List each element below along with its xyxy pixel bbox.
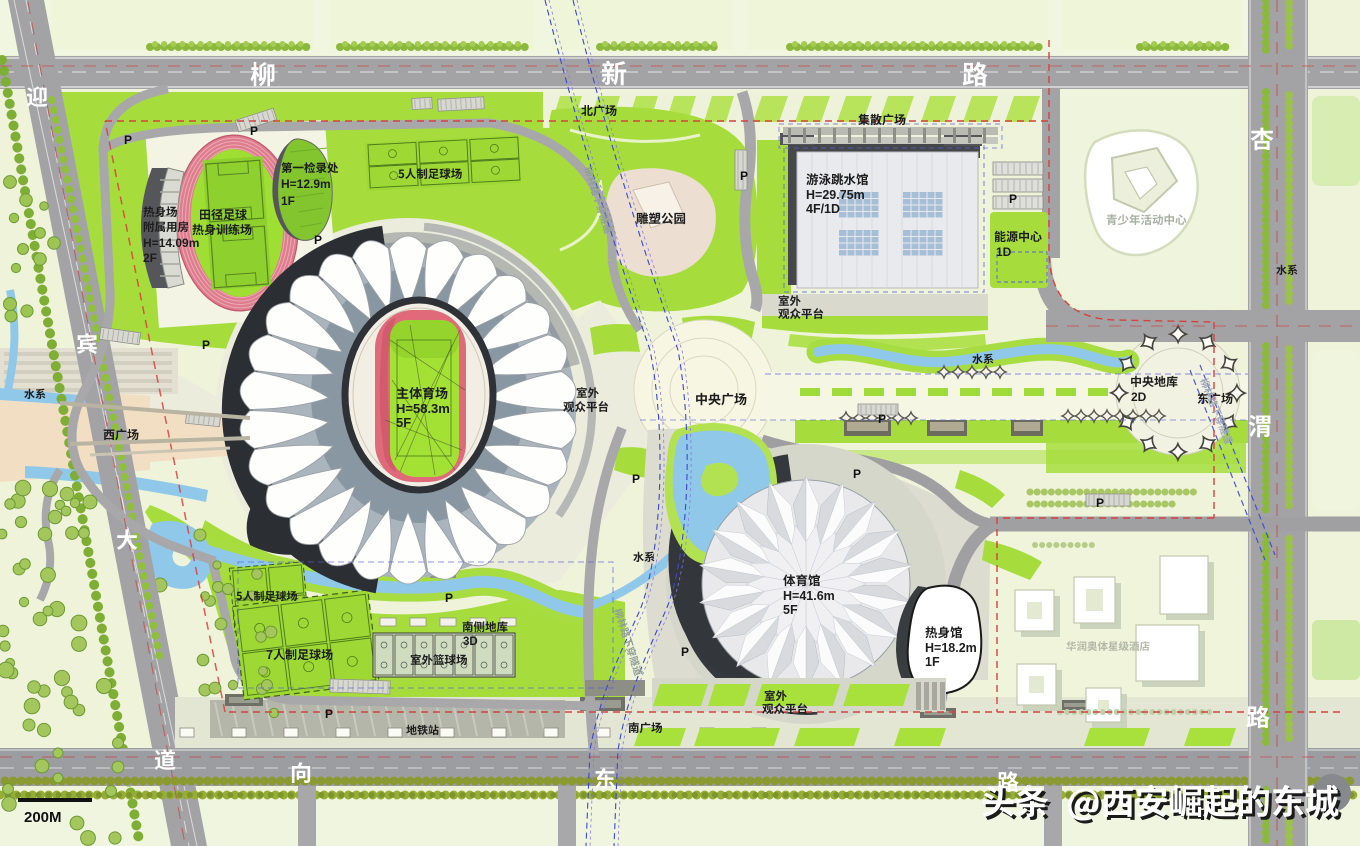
svg-text:H=58.3m: H=58.3m <box>396 401 450 416</box>
svg-text:4F/1D: 4F/1D <box>806 202 840 216</box>
svg-text:3D: 3D <box>463 636 478 648</box>
svg-text:P: P <box>445 591 453 605</box>
svg-text:2D: 2D <box>1131 390 1147 404</box>
svg-text:P: P <box>250 124 258 138</box>
svg-text:2F: 2F <box>143 251 157 265</box>
svg-text:H=29.75m: H=29.75m <box>806 188 865 202</box>
svg-text:P: P <box>1096 496 1104 510</box>
svg-text:5F: 5F <box>396 415 411 430</box>
svg-text:P: P <box>1009 192 1017 206</box>
svg-text:200M: 200M <box>24 809 62 826</box>
svg-text:H=18.2m: H=18.2m <box>925 641 977 655</box>
svg-text:H=12.9m: H=12.9m <box>281 177 331 191</box>
svg-text:P: P <box>325 707 333 721</box>
svg-text:1D: 1D <box>996 245 1012 259</box>
svg-text:P: P <box>632 472 640 486</box>
svg-text:H=41.6m: H=41.6m <box>783 589 835 603</box>
svg-text:5F: 5F <box>783 603 798 617</box>
svg-text:P: P <box>853 467 861 481</box>
svg-text:P: P <box>740 169 748 183</box>
svg-text:P: P <box>681 645 689 659</box>
svg-text:1F: 1F <box>925 655 940 669</box>
svg-text:P: P <box>878 412 886 426</box>
svg-text:H=14.09m: H=14.09m <box>143 236 199 250</box>
svg-text:1F: 1F <box>281 194 295 208</box>
svg-text:P: P <box>314 233 322 247</box>
svg-text:P: P <box>202 338 210 352</box>
svg-text:P: P <box>124 133 132 147</box>
